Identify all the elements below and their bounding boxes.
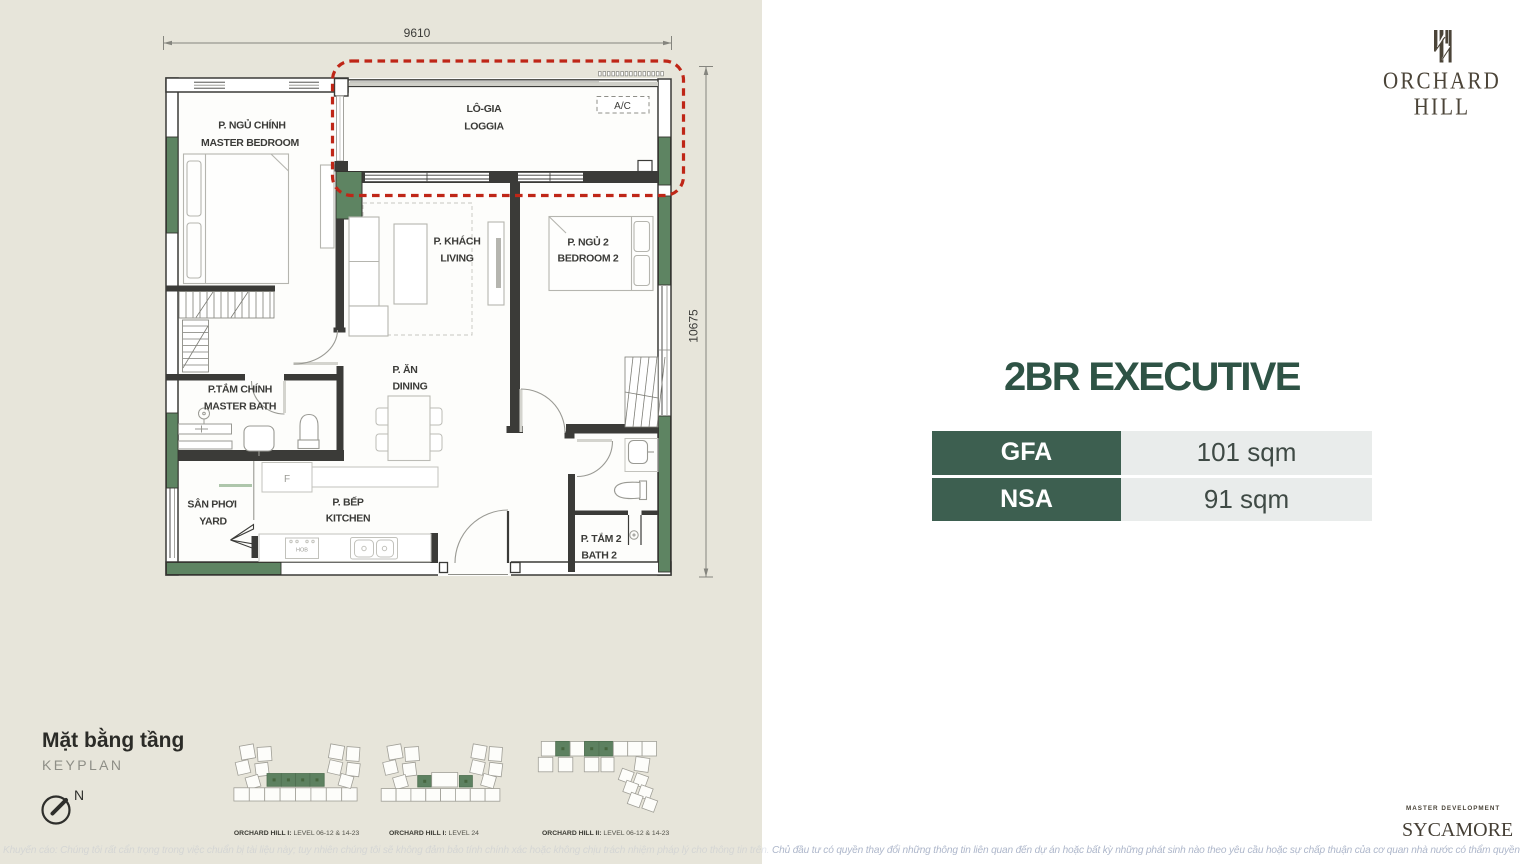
svg-text:ORCHARD HILL I: LEVEL 24: ORCHARD HILL I: LEVEL 24 bbox=[389, 830, 479, 837]
svg-text:ORCHARD HILL II: LEVEL 06-12 &: ORCHARD HILL II: LEVEL 06-12 & 14-23 bbox=[542, 830, 670, 837]
svg-text:ORCHARD HILL I: LEVEL 06-12 &: ORCHARD HILL I: LEVEL 06-12 & 14-23 bbox=[234, 830, 360, 837]
svg-text:N: N bbox=[74, 787, 84, 803]
